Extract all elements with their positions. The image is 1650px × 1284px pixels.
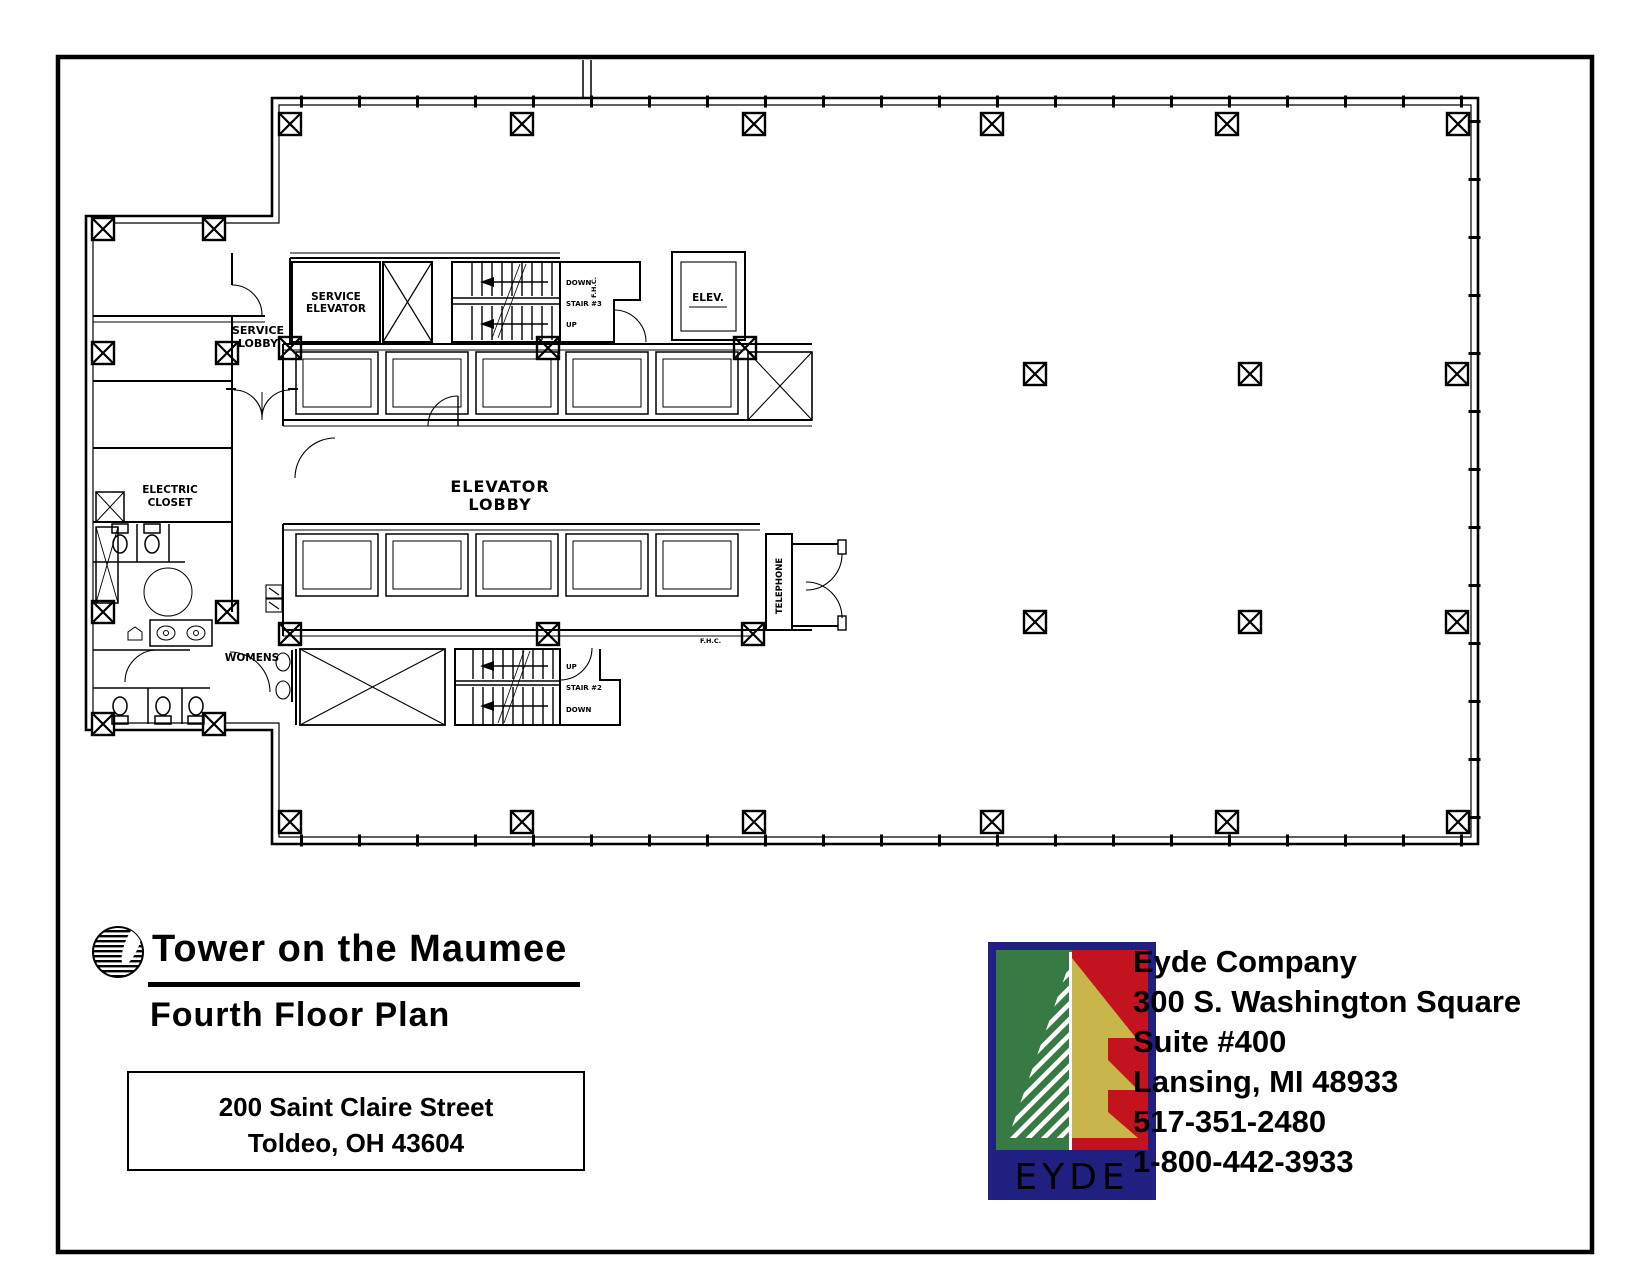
logo-wordmark: EYDE xyxy=(1014,1157,1129,1198)
drawing-title: Tower on the Maumee xyxy=(152,928,567,971)
electric-closet-label: ELECTRIC xyxy=(142,484,198,496)
water-cooler xyxy=(266,585,282,612)
site-address-line2: Toldeo, OH 43604 xyxy=(129,1125,583,1161)
company-phone-local: 517-351-2480 xyxy=(1133,1102,1521,1142)
stair3-labels: DOWN STAIR #3 UP F.H.C. xyxy=(566,277,602,329)
electric-closet-shaft xyxy=(96,492,124,522)
drawing-subtitle: Fourth Floor Plan xyxy=(150,996,450,1035)
telephone-label: TELEPHONE xyxy=(775,558,785,615)
lavatory xyxy=(276,681,290,699)
title-underline xyxy=(148,982,580,987)
svg-text:UP: UP xyxy=(566,321,577,329)
sink-counter xyxy=(150,620,212,646)
structural-columns xyxy=(92,113,1469,833)
shaft-x-upper xyxy=(383,262,432,342)
mech-room-x xyxy=(300,649,445,725)
svg-text:DOWN: DOWN xyxy=(566,279,591,287)
svg-text:DOWN: DOWN xyxy=(566,706,591,714)
svg-text:STAIR #3: STAIR #3 xyxy=(566,300,602,308)
company-name: Eyde Company xyxy=(1133,942,1521,982)
service-lobby-label: SERVICE xyxy=(232,324,284,337)
urinal xyxy=(128,627,142,640)
stair2-labels: UP STAIR #2 DOWN xyxy=(566,663,602,714)
company-address-line3: Lansing, MI 48933 xyxy=(1133,1062,1521,1102)
elev-label: ELEV. xyxy=(692,292,724,304)
double-door xyxy=(226,389,298,420)
globe-icon xyxy=(93,921,147,977)
company-contact-block: Eyde Company 300 S. Washington Square Su… xyxy=(1133,942,1521,1182)
svg-text:STAIR #2: STAIR #2 xyxy=(566,684,602,692)
shaft-x-bank-right xyxy=(748,352,812,420)
restrooms xyxy=(93,522,292,724)
site-address-box: 200 Saint Claire Street Toldeo, OH 43604 xyxy=(127,1071,585,1171)
company-address-line1: 300 S. Washington Square xyxy=(1133,982,1521,1022)
eyde-logo: EYDE xyxy=(988,942,1156,1200)
toilet xyxy=(144,524,160,553)
fhc-lower-label: F.H.C. xyxy=(700,637,721,645)
toilet xyxy=(112,524,128,553)
svg-text:ELEVATOR: ELEVATOR xyxy=(306,303,366,315)
service-elevator-label: SERVICE xyxy=(311,291,361,303)
stair-3 xyxy=(452,262,560,342)
stair-2 xyxy=(455,649,560,725)
site-address-line1: 200 Saint Claire Street xyxy=(129,1089,583,1125)
svg-text:CLOSET: CLOSET xyxy=(148,497,194,509)
toilet xyxy=(188,697,204,724)
company-phone-tollfree: 1-800-442-3933 xyxy=(1133,1142,1521,1182)
toilet xyxy=(155,697,171,724)
building-outline xyxy=(86,60,1478,844)
svg-text:LOBBY: LOBBY xyxy=(468,495,531,514)
womens-label: WOMENS xyxy=(225,652,279,664)
svg-text:UP: UP xyxy=(566,663,577,671)
svg-text:LOBBY: LOBBY xyxy=(238,337,279,350)
elevator-lobby-label: ELEVATOR xyxy=(450,477,549,496)
svg-text:F.H.C.: F.H.C. xyxy=(590,277,598,298)
company-address-line2: Suite #400 xyxy=(1133,1022,1521,1062)
elevator-bank-lower xyxy=(283,524,846,636)
drawing-sheet: SERVICE LOBBY SERVICE ELEVATOR ELEV. ELE… xyxy=(0,0,1650,1284)
